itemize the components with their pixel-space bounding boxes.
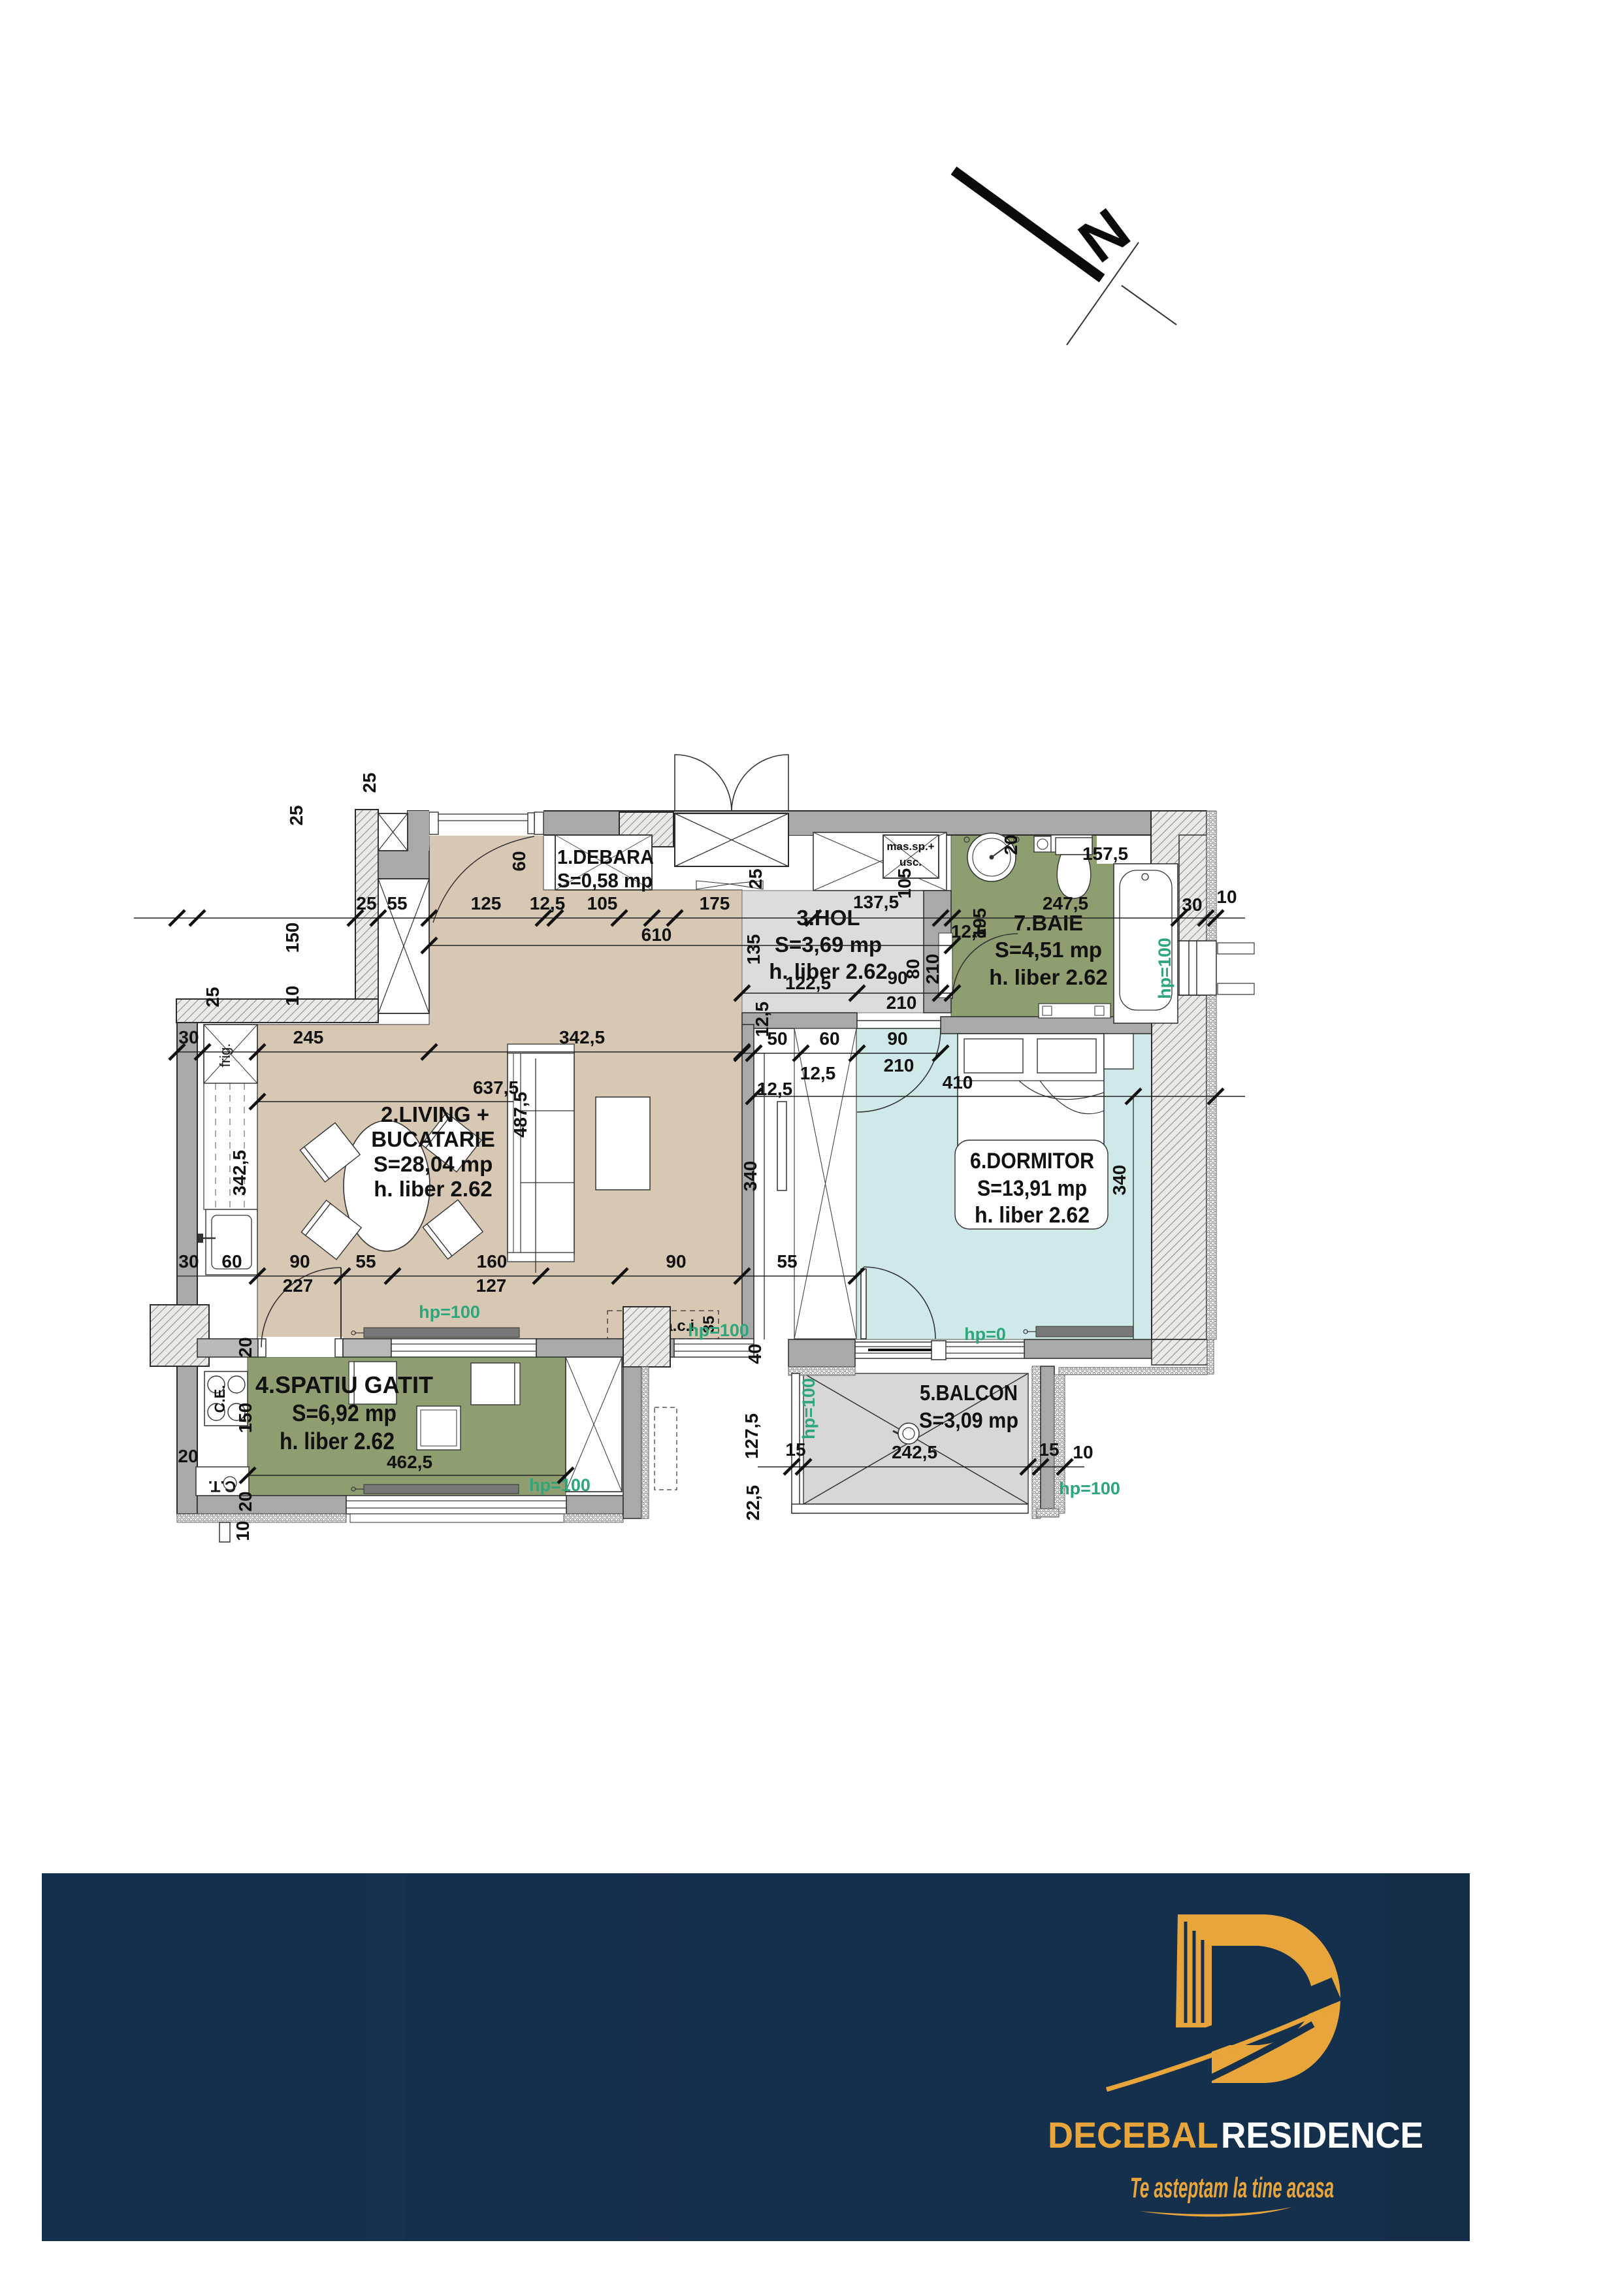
svg-text:487,5: 487,5 xyxy=(510,1092,530,1138)
svg-text:S=4,51 mp: S=4,51 mp xyxy=(995,938,1102,962)
svg-text:210: 210 xyxy=(922,954,943,985)
svg-text:127: 127 xyxy=(476,1275,507,1296)
svg-text:245: 245 xyxy=(293,1027,324,1047)
svg-text:S=0,58 mp: S=0,58 mp xyxy=(557,869,653,892)
svg-text:15: 15 xyxy=(1039,1439,1059,1460)
svg-text:h. liber 2.62: h. liber 2.62 xyxy=(374,1177,493,1201)
svg-text:20: 20 xyxy=(235,1491,255,1511)
svg-text:150: 150 xyxy=(282,923,302,953)
svg-text:55: 55 xyxy=(387,893,407,913)
svg-text:20: 20 xyxy=(235,1337,255,1357)
svg-text:mas.sp.+: mas.sp.+ xyxy=(886,840,934,853)
svg-text:hp=100: hp=100 xyxy=(1059,1479,1120,1498)
svg-text:340: 340 xyxy=(1109,1165,1129,1196)
svg-text:25: 25 xyxy=(356,893,376,913)
svg-text:610: 610 xyxy=(641,925,672,945)
svg-text:175: 175 xyxy=(700,893,730,913)
svg-text:S=13,91 mp: S=13,91 mp xyxy=(977,1176,1087,1201)
svg-text:135: 135 xyxy=(743,934,764,965)
svg-text:7.BAIE: 7.BAIE xyxy=(1014,911,1083,935)
svg-text:RESIDENCE: RESIDENCE xyxy=(1221,2114,1423,2156)
svg-text:60: 60 xyxy=(819,1028,839,1049)
svg-text:342,5: 342,5 xyxy=(559,1027,605,1047)
svg-text:C.E.: C.E. xyxy=(212,1385,228,1413)
svg-text:frig.: frig. xyxy=(217,1043,233,1068)
svg-text:12,5: 12,5 xyxy=(752,1002,772,1038)
svg-text:10: 10 xyxy=(1073,1442,1093,1462)
svg-text:20: 20 xyxy=(178,1446,198,1466)
svg-text:BUCATARIE: BUCATARIE xyxy=(371,1127,494,1151)
svg-text:60: 60 xyxy=(509,851,529,871)
svg-text:hp=100: hp=100 xyxy=(799,1378,818,1439)
svg-text:hp=100: hp=100 xyxy=(529,1475,591,1495)
svg-text:80: 80 xyxy=(903,959,923,979)
svg-text:h. liber 2.62: h. liber 2.62 xyxy=(989,965,1108,989)
svg-text:h. liber 2.62: h. liber 2.62 xyxy=(280,1428,395,1454)
svg-text:S=28,04 mp: S=28,04 mp xyxy=(374,1152,493,1176)
svg-text:25: 25 xyxy=(286,805,306,825)
svg-text:25: 25 xyxy=(359,772,380,793)
svg-text:462,5: 462,5 xyxy=(387,1452,432,1472)
svg-text:30: 30 xyxy=(178,1027,199,1047)
svg-text:6.DORMITOR: 6.DORMITOR xyxy=(970,1149,1094,1173)
svg-text:hp=100: hp=100 xyxy=(1155,938,1174,999)
svg-text:12,5: 12,5 xyxy=(951,921,987,942)
svg-text:30: 30 xyxy=(1182,894,1202,915)
svg-text:12,5: 12,5 xyxy=(800,1063,836,1083)
svg-text:DECEBAL: DECEBAL xyxy=(1048,2114,1218,2156)
svg-text:1.DEBARA: 1.DEBARA xyxy=(557,845,654,868)
svg-text:342,5: 342,5 xyxy=(229,1150,250,1196)
svg-text:60: 60 xyxy=(221,1251,242,1271)
svg-text:247,5: 247,5 xyxy=(1043,893,1088,913)
svg-text:S=6,92 mp: S=6,92 mp xyxy=(292,1400,397,1426)
svg-text:hp=100: hp=100 xyxy=(688,1320,749,1340)
svg-text:30: 30 xyxy=(178,1251,199,1271)
svg-text:127,5: 127,5 xyxy=(741,1413,762,1459)
svg-text:122,5: 122,5 xyxy=(785,973,831,993)
svg-text:160: 160 xyxy=(477,1251,508,1271)
svg-text:12,5: 12,5 xyxy=(757,1079,793,1099)
svg-text:25: 25 xyxy=(745,868,766,889)
svg-text:5.BALCON: 5.BALCON xyxy=(920,1381,1018,1405)
svg-text:Te asteptam la tine acasa: Te asteptam la tine acasa xyxy=(1130,2172,1334,2204)
svg-text:210: 210 xyxy=(886,992,917,1013)
svg-text:125: 125 xyxy=(471,893,502,913)
svg-text:S=3,09 mp: S=3,09 mp xyxy=(919,1408,1018,1432)
svg-text:usc.: usc. xyxy=(899,856,922,868)
svg-text:137,5: 137,5 xyxy=(853,892,899,912)
svg-text:h. liber 2.62: h. liber 2.62 xyxy=(975,1203,1090,1228)
svg-text:90: 90 xyxy=(887,1028,907,1049)
svg-text:227: 227 xyxy=(283,1275,314,1296)
svg-text:105: 105 xyxy=(894,868,915,899)
svg-text:2.LIVING +: 2.LIVING + xyxy=(381,1102,489,1126)
svg-text:20: 20 xyxy=(1001,834,1021,855)
svg-text:hp=0: hp=0 xyxy=(964,1324,1006,1344)
svg-text:55: 55 xyxy=(355,1251,376,1271)
svg-text:210: 210 xyxy=(884,1055,915,1075)
svg-text:55: 55 xyxy=(777,1251,797,1271)
svg-text:410: 410 xyxy=(943,1072,973,1092)
svg-text:150: 150 xyxy=(235,1403,255,1434)
svg-text:12,5: 12,5 xyxy=(530,893,566,913)
svg-text:C.T.: C.T. xyxy=(208,1477,236,1495)
svg-text:10: 10 xyxy=(1216,887,1237,907)
svg-text:90: 90 xyxy=(289,1251,310,1271)
svg-text:10: 10 xyxy=(233,1520,253,1541)
svg-text:40: 40 xyxy=(745,1343,765,1364)
svg-text:25: 25 xyxy=(202,987,223,1007)
svg-text:340: 340 xyxy=(740,1161,760,1192)
svg-text:242,5: 242,5 xyxy=(892,1442,937,1462)
svg-text:105: 105 xyxy=(587,893,618,913)
svg-text:22,5: 22,5 xyxy=(743,1485,763,1521)
svg-text:157,5: 157,5 xyxy=(1082,844,1128,864)
svg-text:10: 10 xyxy=(282,985,302,1006)
svg-text:90: 90 xyxy=(666,1251,686,1271)
svg-text:4.SPATIU GATIT: 4.SPATIU GATIT xyxy=(255,1371,433,1398)
svg-text:S=3,69 mp: S=3,69 mp xyxy=(775,932,882,957)
svg-text:hp=100: hp=100 xyxy=(419,1302,480,1322)
svg-text:15: 15 xyxy=(785,1439,805,1460)
